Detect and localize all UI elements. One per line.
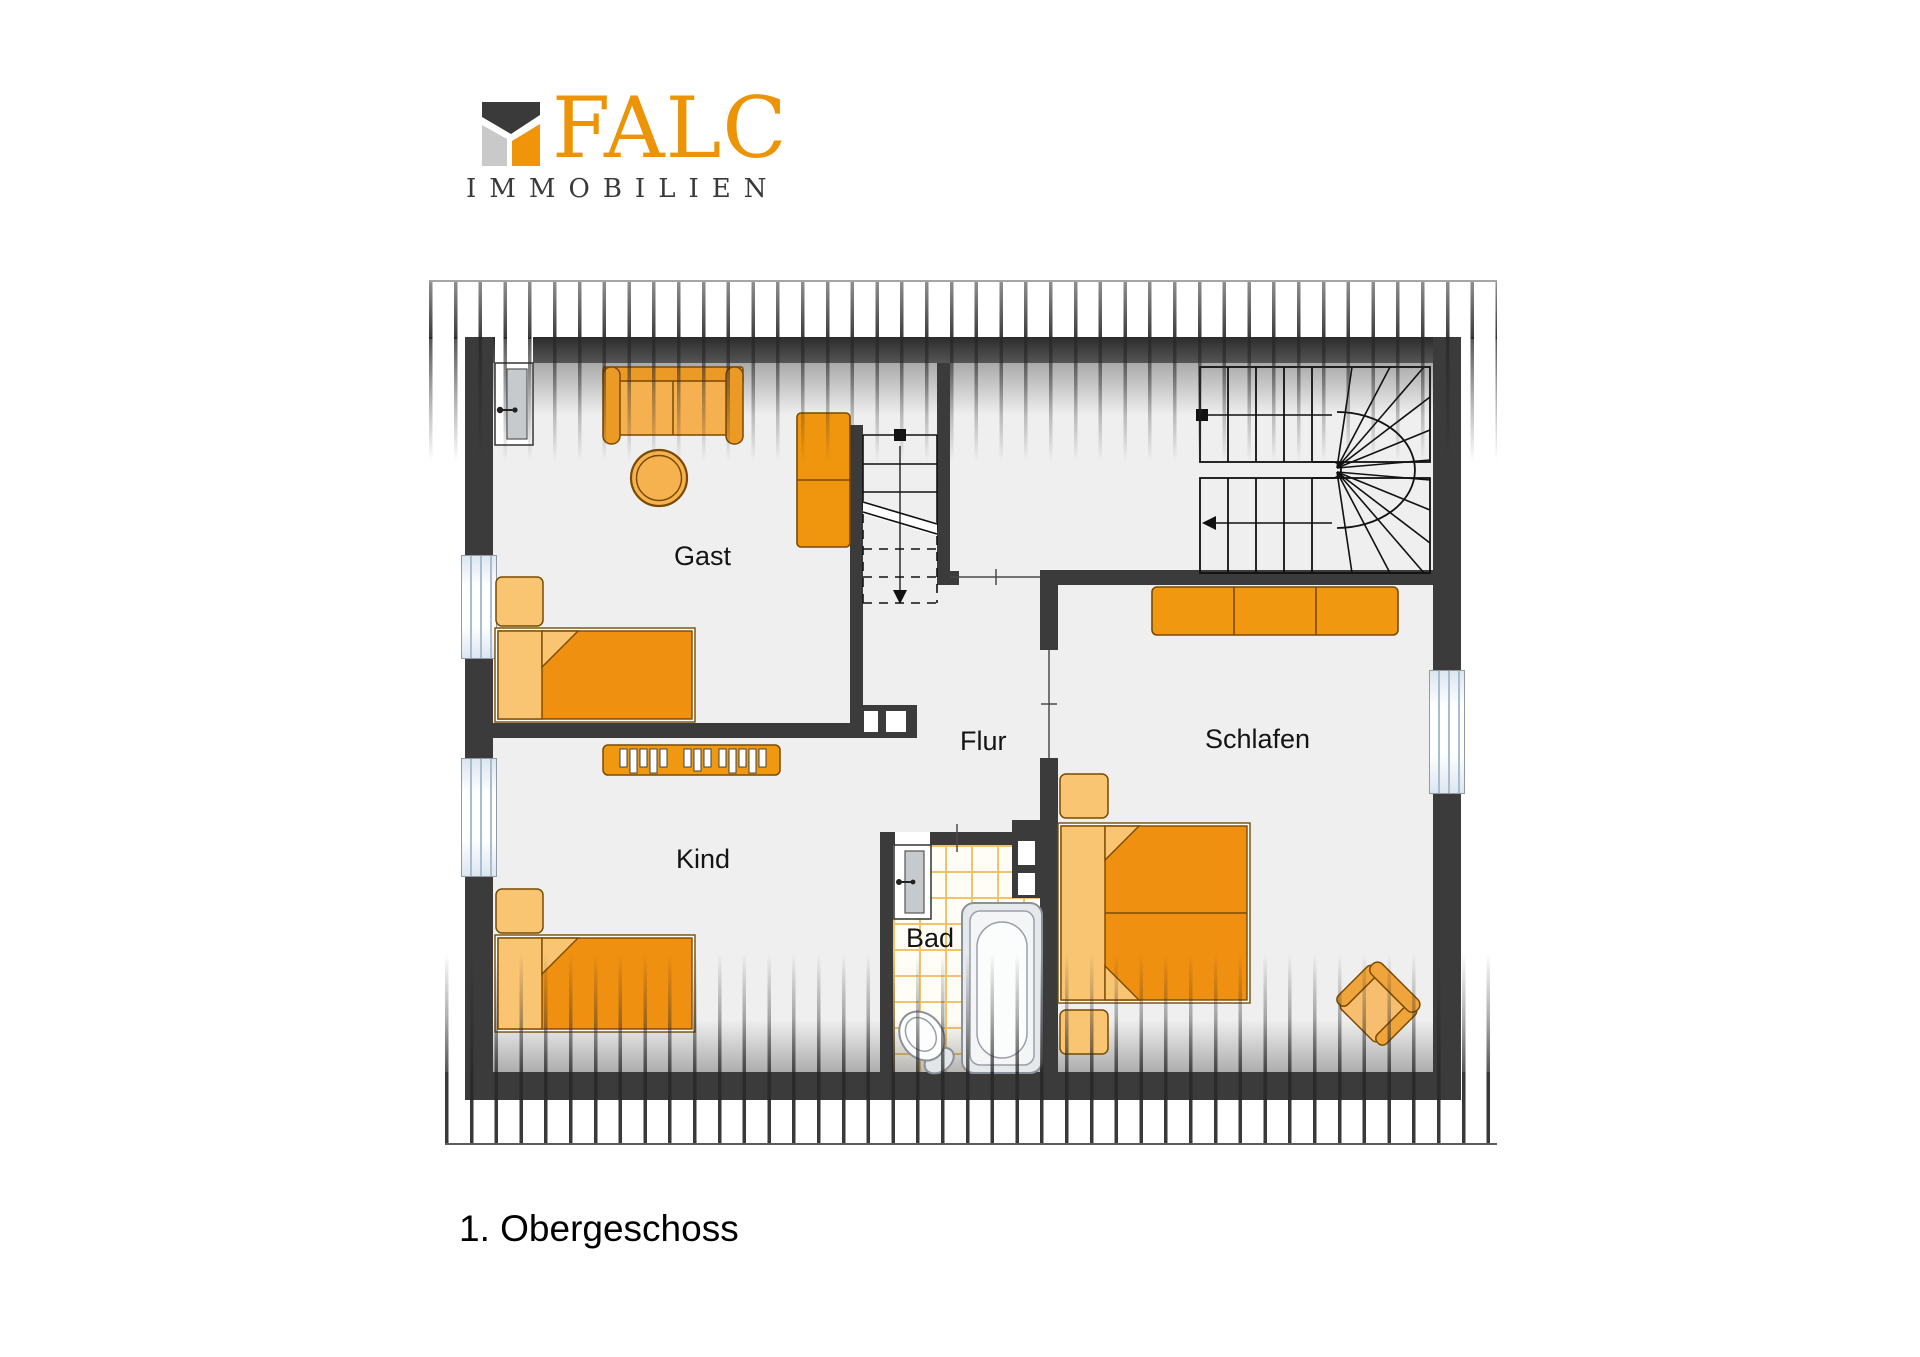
- bed-gast: [495, 628, 695, 722]
- nightstand-gast: [496, 577, 543, 626]
- roof-hatch-top: [429, 280, 1497, 339]
- door-bad: [894, 845, 931, 919]
- desk-kind: [603, 745, 780, 775]
- room-label-flur: Flur: [960, 728, 1007, 755]
- room-label-kind: Kind: [676, 846, 730, 873]
- roof-hatch-bottom-fade: [445, 948, 1497, 1072]
- page: FALC IMMOBILIEN: [0, 0, 1920, 1357]
- room-label-bad: Bad: [906, 925, 954, 952]
- wardrobe-schlafen: [1152, 587, 1398, 635]
- wall-niches-flur: [856, 705, 917, 738]
- roof-hatch-top-fade: [429, 337, 1497, 472]
- nightstand-schlafen-1: [1060, 774, 1108, 818]
- plan-graphics: [0, 0, 1920, 1357]
- room-label-schlafen: Schlafen: [1205, 726, 1310, 753]
- shaft-wall-niches: [1012, 820, 1040, 898]
- nightstand-kind: [496, 889, 543, 933]
- opening-lines: [950, 569, 1057, 852]
- floor-caption: 1. Obergeschoss: [459, 1210, 739, 1247]
- room-label-gast: Gast: [674, 543, 731, 570]
- roof-hatch-bottom: [445, 1072, 1497, 1145]
